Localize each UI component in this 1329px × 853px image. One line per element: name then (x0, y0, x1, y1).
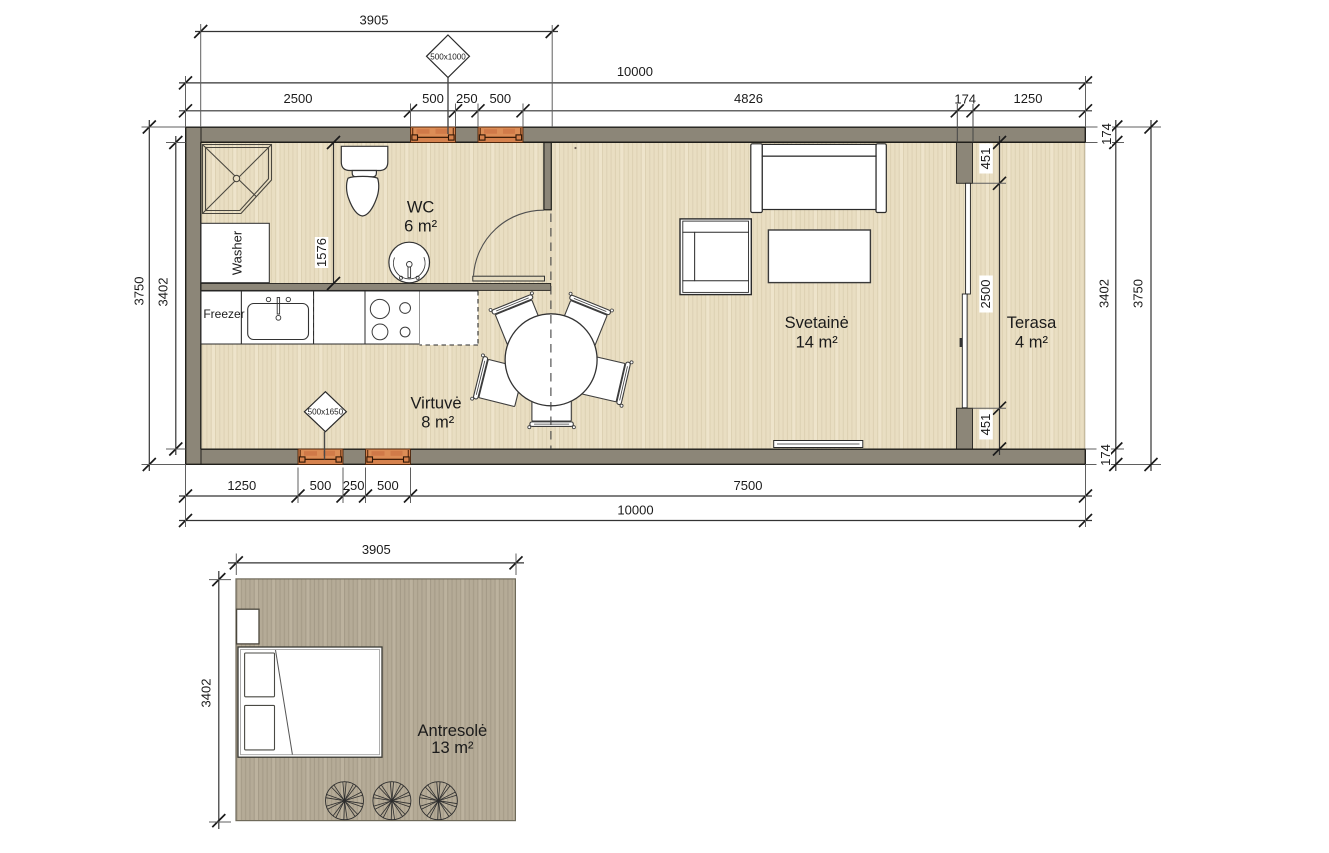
svg-text:3750: 3750 (132, 277, 147, 306)
svg-text:Antresolė: Antresolė (418, 722, 488, 740)
svg-text:Virtuvė: Virtuvė (410, 395, 461, 413)
svg-text:4 m²: 4 m² (1015, 334, 1049, 352)
svg-text:2500: 2500 (284, 91, 313, 106)
svg-text:3905: 3905 (362, 542, 391, 557)
svg-text:451: 451 (978, 148, 993, 170)
svg-text:6 m²: 6 m² (404, 218, 438, 236)
svg-text:500: 500 (489, 91, 511, 106)
svg-text:Freezer: Freezer (203, 307, 244, 321)
svg-text:Svetainė: Svetainė (785, 314, 849, 332)
svg-text:1250: 1250 (227, 478, 256, 493)
svg-text:500x1000: 500x1000 (430, 52, 466, 61)
svg-text:10000: 10000 (617, 503, 653, 518)
svg-text:3402: 3402 (156, 278, 171, 307)
svg-text:8 m²: 8 m² (421, 414, 455, 432)
svg-text:3402: 3402 (1096, 279, 1111, 308)
svg-text:500: 500 (422, 91, 444, 106)
svg-text:3402: 3402 (199, 679, 214, 708)
svg-text:10000: 10000 (617, 64, 653, 79)
svg-text:451: 451 (978, 414, 993, 436)
svg-text:WC: WC (407, 199, 435, 217)
svg-text:500x1650: 500x1650 (308, 407, 344, 416)
svg-text:250: 250 (343, 478, 365, 493)
svg-text:174: 174 (1099, 123, 1114, 145)
svg-text:2500: 2500 (978, 280, 993, 309)
svg-text:250: 250 (456, 91, 478, 106)
svg-text:7500: 7500 (734, 478, 763, 493)
svg-text:500: 500 (310, 478, 332, 493)
svg-text:1250: 1250 (1014, 91, 1043, 106)
svg-text:13 m²: 13 m² (431, 739, 474, 757)
svg-text:Washer: Washer (230, 230, 245, 275)
svg-text:174: 174 (1098, 444, 1113, 466)
svg-text:3750: 3750 (1131, 279, 1146, 308)
svg-text:500: 500 (377, 478, 399, 493)
svg-text:4826: 4826 (734, 91, 763, 106)
svg-text:1576: 1576 (314, 238, 329, 267)
svg-text:Terasa: Terasa (1007, 314, 1057, 332)
svg-text:3905: 3905 (360, 13, 389, 28)
svg-text:14 m²: 14 m² (796, 334, 839, 352)
